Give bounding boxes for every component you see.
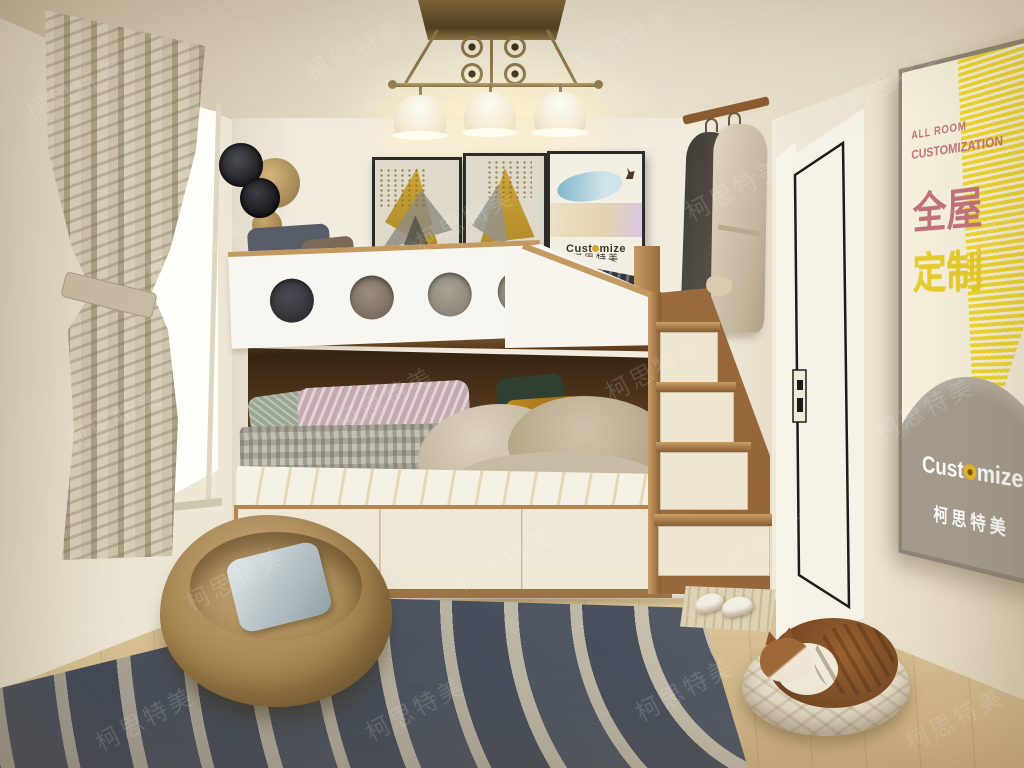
chandelier-scroll-icon	[461, 63, 483, 85]
cat-head	[760, 638, 812, 682]
chandelier-bar-cap	[388, 80, 397, 89]
chandelier-bar	[392, 83, 597, 87]
stair-drawer	[660, 452, 748, 510]
customization-poster: ALL ROOM CUSTOMIZATION 全屋 定制 Custmize 柯思…	[899, 32, 1024, 590]
lamp-shade	[394, 95, 446, 137]
stair-tread	[656, 382, 736, 392]
speckle-texture	[486, 160, 533, 198]
porthole-cutout	[349, 275, 395, 321]
lamp-shade	[534, 92, 586, 134]
porthole-cutout	[269, 278, 315, 324]
poster-brand-prefix: Cust	[922, 450, 964, 484]
poster-cn-line1: 全屋	[913, 170, 983, 241]
cat-fur-stripes	[814, 623, 895, 695]
door-trim	[780, 100, 880, 660]
poster-brand-suffix: mize	[977, 458, 1024, 494]
stair-tread	[656, 322, 720, 332]
poster-kicker: ALL ROOM	[911, 118, 966, 141]
porthole-cutout	[427, 272, 473, 318]
chandelier-ceiling-plate	[418, 0, 566, 40]
chandelier-scroll-icon	[504, 36, 526, 58]
upper-bunk-guardrail	[228, 240, 543, 349]
stair-drawer	[658, 526, 770, 576]
chandelier-rod	[490, 38, 493, 88]
mountain-art	[555, 167, 625, 206]
landscape-art	[550, 203, 642, 237]
poster-brand-cn: 柯思特美	[899, 488, 1024, 558]
chandelier-bar-cap	[594, 80, 603, 89]
lamp-shade	[464, 92, 516, 134]
stair-drawer	[660, 392, 734, 444]
customize-o-icon	[964, 463, 977, 481]
door-lock-plate	[793, 370, 806, 422]
stair-tread	[654, 514, 772, 526]
poster-gray-dome: Custmize 柯思特美	[899, 371, 1024, 590]
hanger-hook-icon	[705, 118, 718, 132]
bedroom-scene: Custmize 柯思特美	[0, 0, 1024, 768]
deer-icon	[626, 167, 635, 179]
speckle-texture	[378, 168, 424, 208]
stair-drawer	[660, 332, 718, 384]
poster-cn-line2: 定制	[913, 234, 983, 301]
chandelier-scroll-icon	[461, 36, 483, 58]
stair-tread	[656, 442, 751, 452]
dark-plate-decor-icon	[240, 178, 280, 218]
chandelier-scroll-icon	[504, 63, 526, 85]
